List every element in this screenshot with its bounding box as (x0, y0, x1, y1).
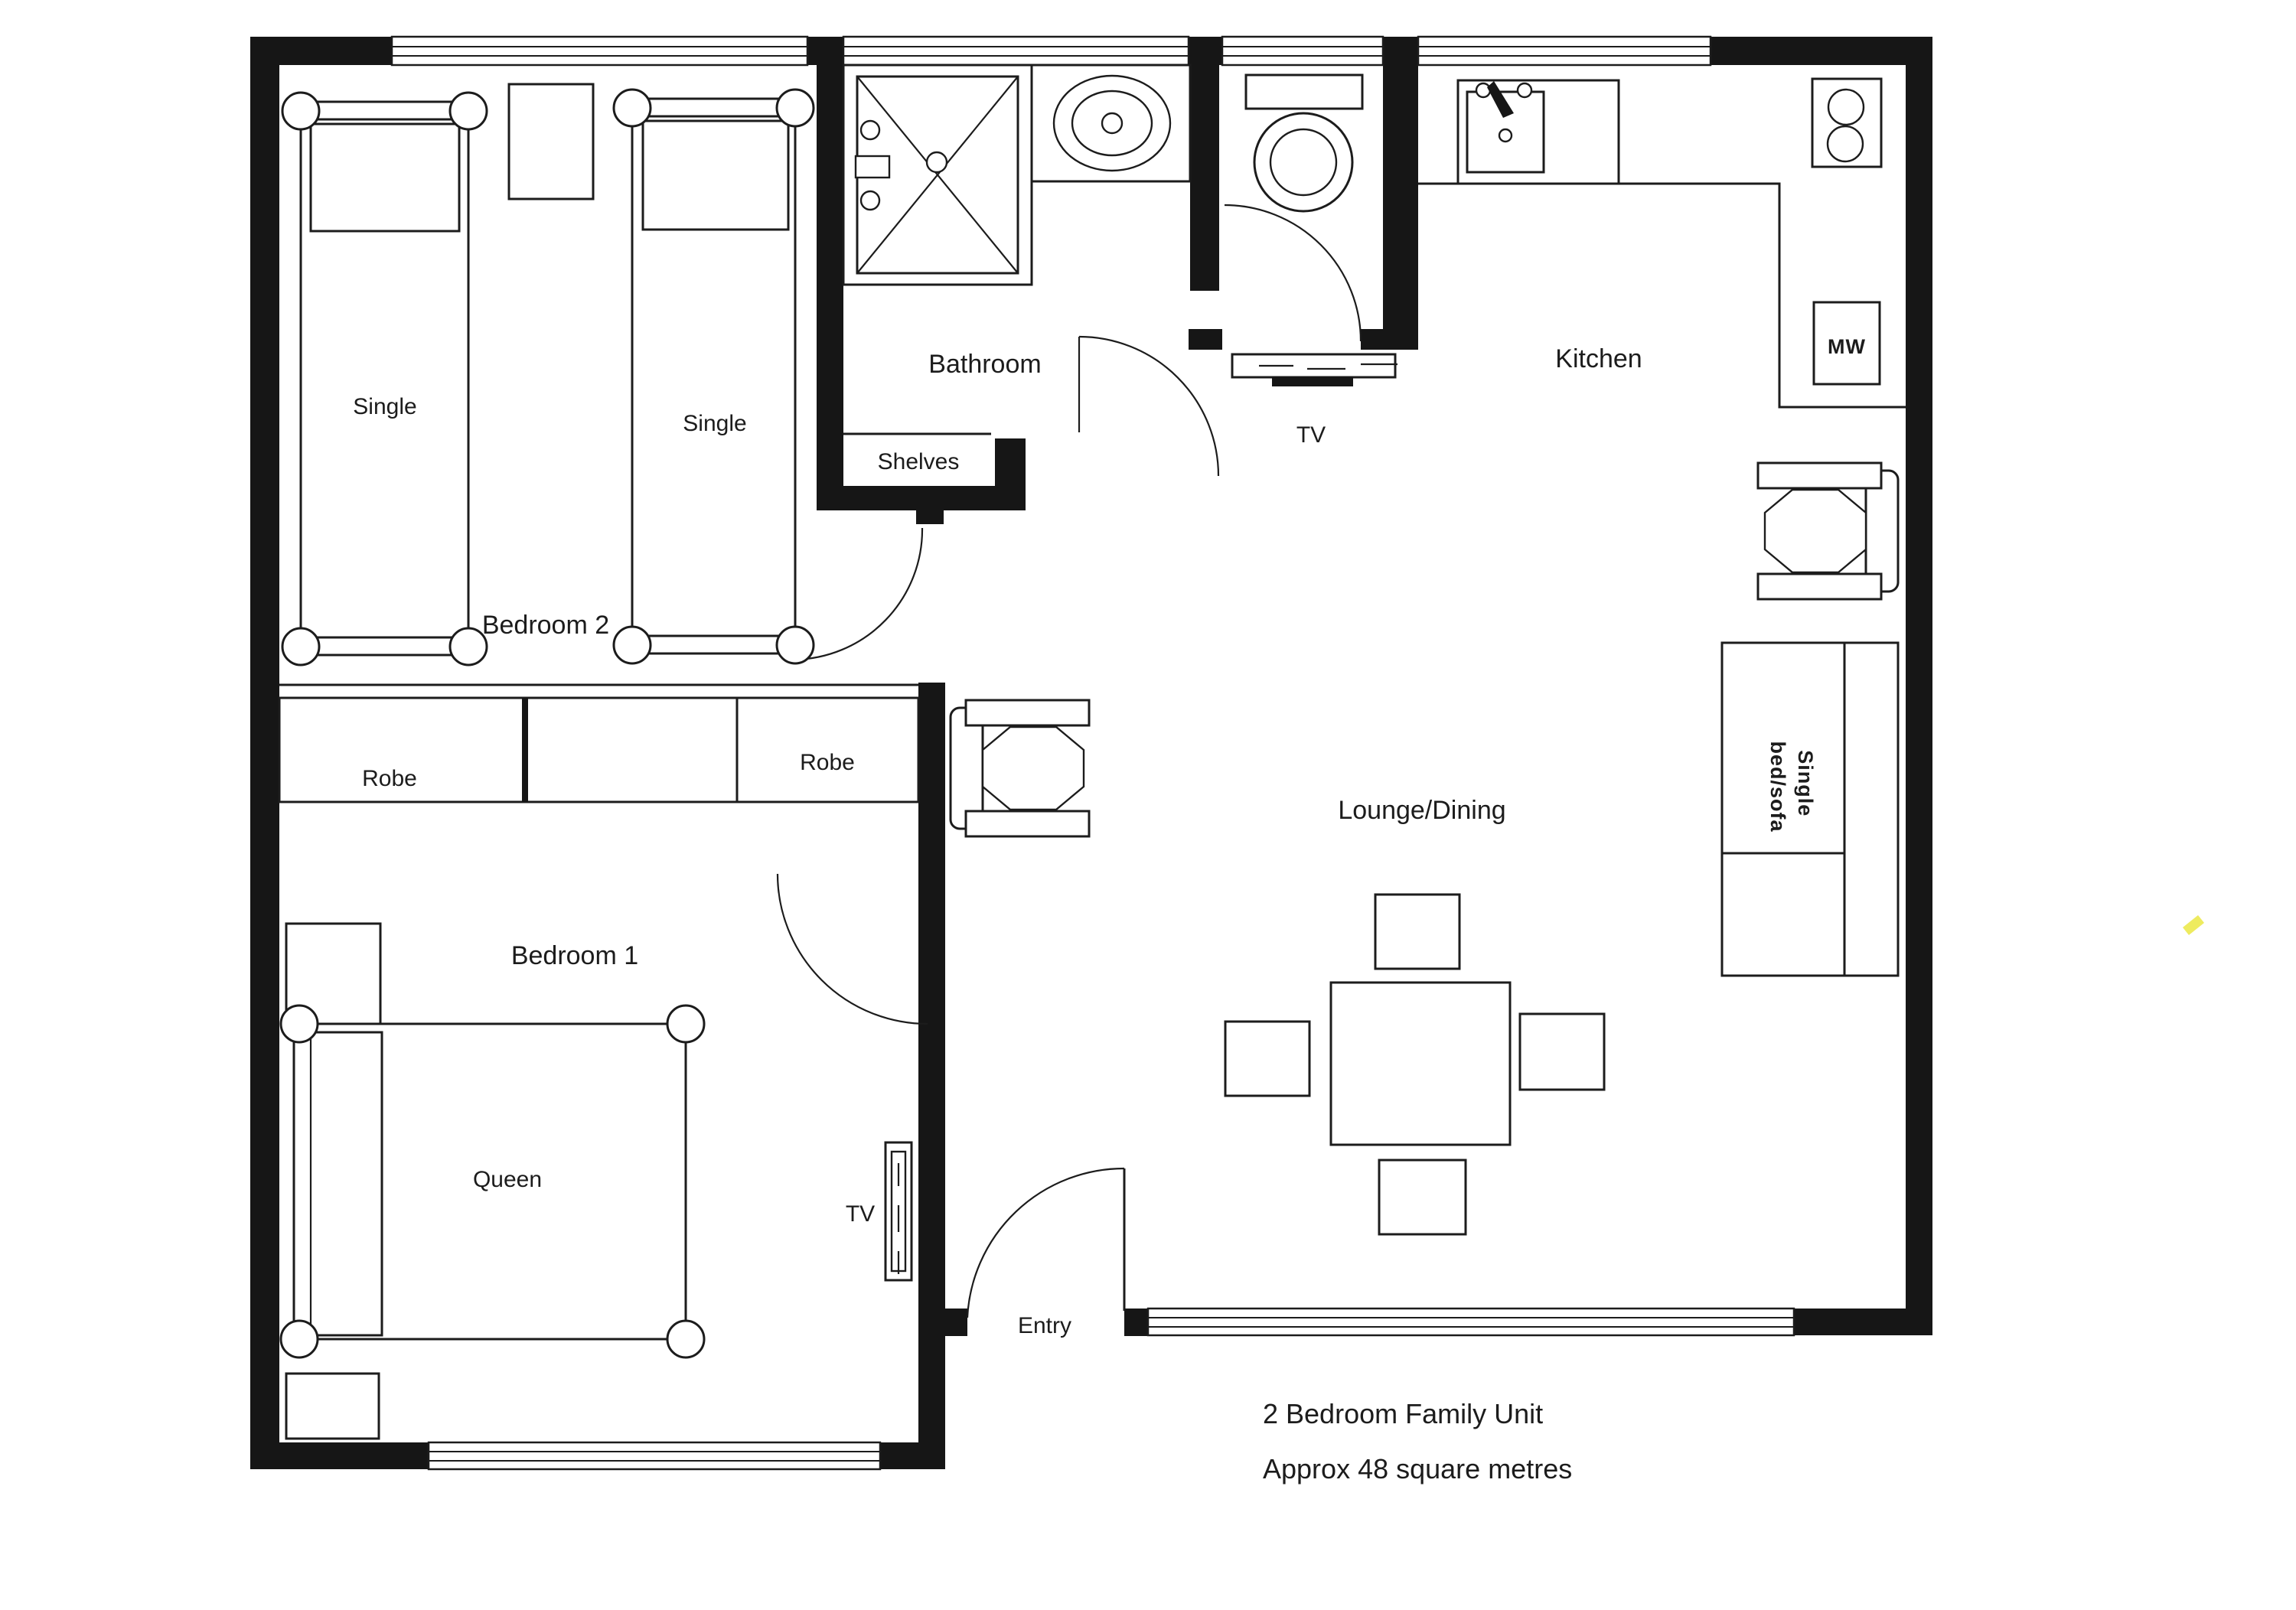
dining-set (1225, 895, 1604, 1234)
sofa-bed: Single bed/sofa (1722, 643, 1898, 976)
robe-band: Robe Robe (279, 698, 918, 802)
bed-post (450, 93, 487, 129)
pillow (311, 124, 459, 231)
bed-foot-bar (301, 637, 468, 655)
sink-drain (1499, 129, 1512, 142)
bedroom2-bathroom-wall (817, 65, 843, 510)
window-bedroom2 (392, 37, 807, 65)
bed-post (614, 627, 651, 663)
bedroom1: Robe Robe Queen TV Bedroom 1 (279, 685, 918, 1439)
pillow (643, 121, 788, 230)
queen-label: Queen (473, 1167, 542, 1192)
dining-table (1331, 983, 1510, 1145)
armchair-hall (951, 700, 1089, 836)
wc-door-arc (1225, 205, 1361, 341)
robe-left-label: Robe (362, 766, 417, 791)
shelves-label: Shelves (878, 449, 960, 474)
tv-base (1272, 376, 1353, 386)
kitchen-label: Kitchen (1555, 344, 1642, 373)
dining-chair-left (1225, 1022, 1309, 1096)
laundry-wc (1246, 75, 1362, 211)
top-wall-corner-right (1711, 37, 1932, 65)
queen-bed: Queen (281, 1005, 704, 1357)
bed-post (281, 1005, 318, 1042)
single-bed-1-label: Single (353, 394, 416, 419)
bedroom2: Single Single Bedroom 2 (282, 84, 814, 665)
armchair-arm (966, 700, 1089, 725)
single-bed-2: Single (614, 90, 814, 663)
floor-plan-canvas: Single Single Bedroom 2 (0, 0, 2296, 1610)
sink-tap (1518, 83, 1531, 97)
single-bed-1: Single (282, 93, 487, 665)
floorplan-page: Single Single Bedroom 2 (0, 0, 2296, 1610)
left-wall (250, 37, 279, 1469)
bed-post (667, 1005, 704, 1042)
armchair-arm (1758, 574, 1881, 599)
kitchen-sink (1458, 80, 1619, 184)
scan-artifact-highlight (2183, 915, 2204, 935)
bed-post (450, 628, 487, 665)
sofa-label-line2: bed/sofa (1766, 741, 1789, 832)
window-wc (1222, 37, 1383, 65)
window-lounge-south (1148, 1309, 1794, 1335)
hotplate (1828, 90, 1864, 125)
robe-right-label: Robe (800, 750, 855, 775)
wc-bottom-wall-right (1361, 329, 1418, 350)
hotplate (1828, 126, 1863, 161)
bed-post (777, 627, 814, 663)
stove (1812, 79, 1881, 167)
bedroom1-door-arc (778, 874, 928, 1024)
top-wall-pier-2 (1189, 37, 1222, 65)
shower-mixer (856, 156, 889, 178)
entry-jamb-right (1124, 1309, 1148, 1336)
tv-wall-label: TV (1296, 422, 1326, 448)
armchair-seat (1765, 490, 1866, 572)
shower-tap (861, 121, 879, 139)
sink-tap (1476, 83, 1490, 97)
entry-label: Entry (1018, 1313, 1071, 1338)
bathroom-wc-wall (1190, 65, 1219, 291)
dining-chair-top (1375, 895, 1459, 969)
window-bedroom1-south (429, 1442, 880, 1469)
shower (843, 65, 1032, 285)
microwave: MW (1814, 302, 1880, 384)
bed-post (777, 90, 814, 126)
footer: 2 Bedroom Family Unit Approx 48 square m… (1263, 1398, 1572, 1485)
sofa-label-line1: Single (1794, 750, 1817, 816)
bed-post (667, 1321, 704, 1357)
washing-machine-drum (1270, 129, 1336, 195)
laundry-shelf (1246, 75, 1362, 109)
top-wall-pier-3 (1383, 37, 1418, 65)
nightstand-lower (286, 1374, 379, 1439)
bottom-wall-lounge-corner (1794, 1309, 1932, 1335)
armchair-kitchen (1758, 463, 1898, 599)
armchair-seat (983, 727, 1084, 810)
queen-headboard (294, 1032, 382, 1335)
bed-head-bar (632, 99, 795, 116)
bed-post (281, 1321, 318, 1357)
top-wall-pier-1 (807, 37, 843, 65)
armchair-arm (966, 811, 1089, 836)
shelves-wall-right (995, 438, 1026, 510)
wc-kitchen-wall (1383, 65, 1418, 350)
kitchen: MW Kitchen (1418, 79, 1906, 407)
shower-drain (927, 152, 947, 172)
bed-post (282, 93, 319, 129)
bed-foot-bar (632, 636, 795, 653)
dining-chair-bottom (1379, 1160, 1466, 1234)
bed-post (282, 628, 319, 665)
basin-drain (1102, 113, 1122, 133)
lounge-dining: TV Single bed/sofa (951, 354, 1898, 1338)
bathroom-door-arc (1079, 337, 1218, 476)
dining-chair-right (1520, 1014, 1604, 1090)
tv-cabinet (1232, 354, 1395, 377)
tv-unit: TV (1232, 354, 1397, 448)
bed-head-bar (301, 102, 468, 119)
bedroom2-label: Bedroom 2 (482, 611, 609, 640)
tv-bedroom-label: TV (846, 1201, 875, 1227)
top-wall-corner-left (250, 37, 392, 65)
armchair-arm (1758, 463, 1881, 488)
plan-title: 2 Bedroom Family Unit (1263, 1398, 1543, 1429)
tv-bedroom1: TV (846, 1142, 912, 1280)
lounge-dining-label: Lounge/Dining (1338, 796, 1505, 825)
bathroom: Shelves Bathroom (843, 65, 1190, 474)
bedroom2-door-stub (916, 510, 944, 524)
vanity (1032, 65, 1190, 181)
single-bed-2-label: Single (683, 411, 746, 436)
entry-door-arc (967, 1168, 1124, 1318)
wc-bottom-wall-left (1189, 329, 1222, 350)
plan-subtitle: Approx 48 square metres (1263, 1453, 1572, 1485)
right-wall (1906, 37, 1932, 1335)
window-bathroom (843, 37, 1189, 65)
microwave-label: MW (1828, 335, 1866, 358)
nightstand-bedroom2 (509, 84, 593, 199)
bedroom1-label: Bedroom 1 (511, 941, 638, 970)
bottom-wall-bedroom1-left (250, 1442, 429, 1469)
bed-post (614, 90, 651, 126)
window-kitchen (1418, 37, 1711, 65)
bathroom-label: Bathroom (928, 350, 1041, 379)
shower-tap (861, 191, 879, 210)
bedroom1-right-wall (918, 683, 945, 1469)
shelves-wall-bottom (817, 486, 1026, 510)
